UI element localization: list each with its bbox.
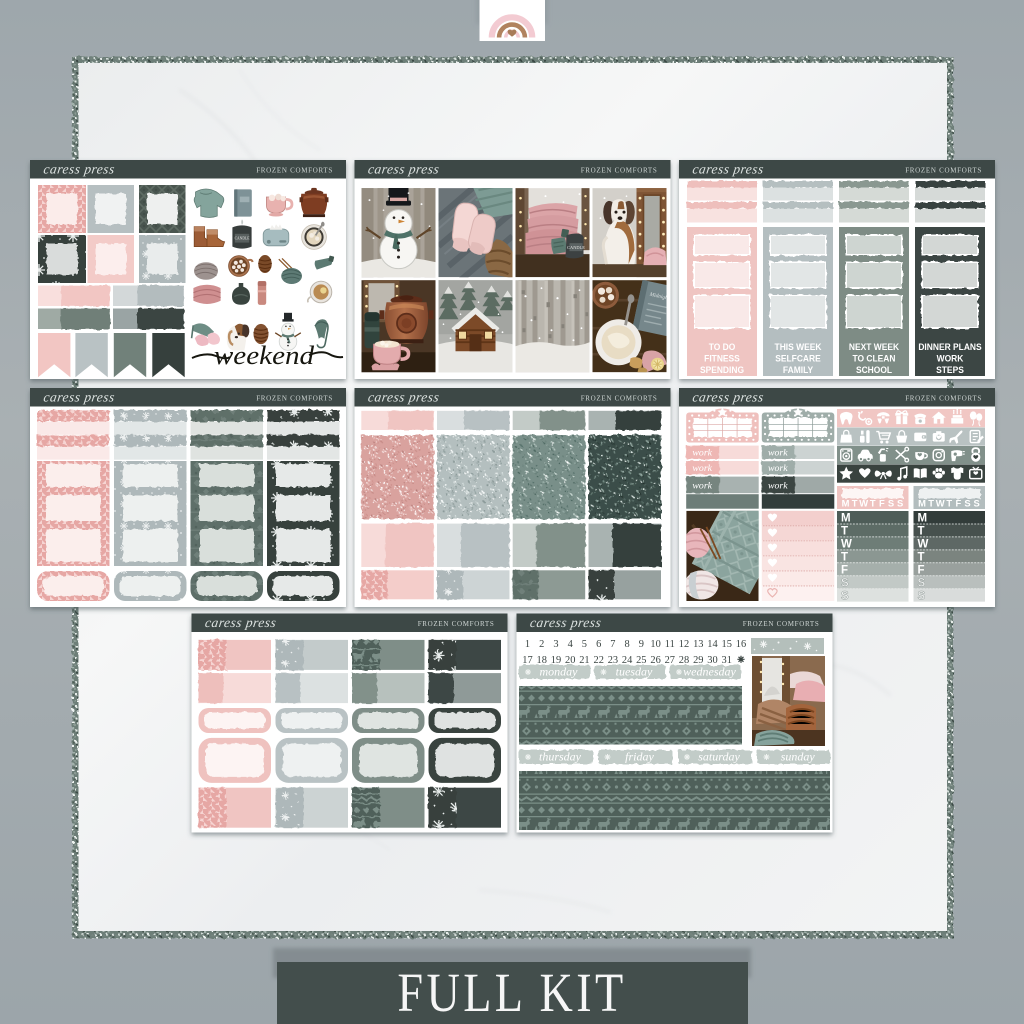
svg-text:M: M	[842, 498, 850, 509]
svg-text:S: S	[841, 590, 849, 602]
svg-text:work: work	[768, 448, 788, 459]
svg-text:9: 9	[639, 639, 644, 650]
svg-text:FROZEN COMFORTS: FROZEN COMFORTS	[905, 395, 982, 403]
svg-text:sunday: sunday	[781, 750, 816, 764]
svg-text:THIS WEEK: THIS WEEK	[775, 342, 822, 353]
svg-text:TO CLEAN: TO CLEAN	[853, 353, 896, 364]
svg-text:SCHOOL: SCHOOL	[856, 365, 893, 376]
svg-text:SELFCARE: SELFCARE	[775, 353, 820, 364]
svg-text:14: 14	[707, 639, 718, 650]
svg-text:DINNER PLANS: DINNER PLANS	[918, 342, 981, 353]
svg-text:SPENDING: SPENDING	[700, 365, 744, 376]
svg-text:WORK: WORK	[937, 353, 964, 364]
svg-text:caress press: caress press	[204, 615, 277, 630]
svg-text:27: 27	[665, 655, 675, 666]
svg-text:saturday: saturday	[698, 750, 740, 764]
svg-text:5: 5	[582, 639, 587, 650]
svg-text:STEPS: STEPS	[936, 365, 964, 376]
svg-text:FITNESS: FITNESS	[704, 353, 740, 364]
svg-text:12: 12	[679, 639, 689, 650]
svg-text:4: 4	[568, 639, 574, 650]
svg-text:S: S	[964, 498, 970, 509]
svg-text:work: work	[768, 480, 788, 491]
svg-text:T: T	[918, 551, 925, 563]
svg-text:caress press: caress press	[692, 389, 765, 404]
svg-text:thursday: thursday	[539, 750, 582, 764]
svg-text:TO DO: TO DO	[709, 342, 736, 353]
svg-text:W: W	[918, 539, 929, 551]
svg-text:CANDLE: CANDLE	[567, 245, 585, 250]
svg-text:weekend: weekend	[214, 340, 314, 369]
svg-text:FROZEN COMFORTS: FROZEN COMFORTS	[256, 167, 333, 175]
svg-text:T: T	[870, 498, 876, 509]
svg-text:F: F	[918, 564, 925, 576]
svg-text:3: 3	[553, 639, 558, 650]
svg-text:FROZEN COMFORTS: FROZEN COMFORTS	[581, 395, 658, 403]
svg-text:M: M	[918, 513, 928, 525]
svg-text:T: T	[946, 498, 952, 509]
svg-text:tuesday: tuesday	[616, 665, 653, 679]
svg-text:13: 13	[693, 639, 703, 650]
svg-text:M: M	[918, 498, 926, 509]
svg-text:16: 16	[736, 639, 746, 650]
svg-text:work: work	[768, 463, 788, 474]
svg-text:FROZEN COMFORTS: FROZEN COMFORTS	[743, 620, 820, 628]
svg-text:17: 17	[522, 655, 532, 666]
svg-text:2: 2	[539, 639, 544, 650]
svg-text:21: 21	[579, 655, 589, 666]
svg-text:wednesday: wednesday	[683, 665, 736, 679]
svg-text:caress press: caress press	[692, 161, 765, 176]
svg-text:15: 15	[722, 639, 732, 650]
svg-text:1: 1	[525, 639, 530, 650]
svg-text:caress press: caress press	[367, 389, 440, 404]
svg-text:S: S	[918, 590, 926, 602]
svg-text:FROZEN COMFORTS: FROZEN COMFORTS	[418, 620, 495, 628]
svg-text:FAMILY: FAMILY	[783, 365, 813, 376]
svg-text:FROZEN COMFORTS: FROZEN COMFORTS	[905, 167, 982, 175]
svg-text:T: T	[841, 551, 848, 563]
svg-text:11: 11	[665, 639, 675, 650]
svg-text:S: S	[888, 498, 894, 509]
svg-text:10: 10	[650, 639, 660, 650]
svg-text:S: S	[918, 577, 926, 589]
svg-text:work: work	[692, 463, 712, 474]
svg-text:7: 7	[610, 639, 615, 650]
svg-text:FROZEN COMFORTS: FROZEN COMFORTS	[581, 167, 658, 175]
svg-text:caress press: caress press	[43, 389, 116, 404]
svg-text:caress press: caress press	[367, 161, 440, 176]
svg-text:CANDLE: CANDLE	[235, 236, 251, 240]
svg-text:work: work	[692, 448, 712, 459]
svg-text:22: 22	[594, 655, 604, 666]
svg-text:T: T	[841, 526, 848, 538]
svg-text:caress press: caress press	[43, 161, 116, 176]
svg-text:M: M	[841, 513, 851, 525]
svg-text:W: W	[841, 539, 852, 551]
svg-text:F: F	[956, 498, 962, 509]
svg-text:F: F	[841, 564, 848, 576]
svg-text:S: S	[897, 498, 903, 509]
svg-text:monday: monday	[540, 665, 579, 679]
svg-text:FULL KIT: FULL KIT	[397, 962, 626, 1023]
svg-text:W: W	[859, 498, 868, 509]
svg-text:S: S	[841, 577, 849, 589]
svg-text:T: T	[918, 526, 925, 538]
svg-text:T: T	[928, 498, 934, 509]
svg-text:S: S	[973, 498, 979, 509]
svg-text:caress press: caress press	[529, 615, 602, 630]
svg-text:friday: friday	[625, 750, 654, 764]
svg-text:NEXT WEEK: NEXT WEEK	[849, 342, 900, 353]
svg-text:F: F	[879, 498, 885, 509]
svg-text:6: 6	[596, 639, 601, 650]
svg-text:FROZEN COMFORTS: FROZEN COMFORTS	[256, 395, 333, 403]
svg-text:work: work	[692, 480, 712, 491]
svg-text:T: T	[852, 498, 858, 509]
svg-text:W: W	[936, 498, 945, 509]
svg-text:8: 8	[624, 639, 629, 650]
